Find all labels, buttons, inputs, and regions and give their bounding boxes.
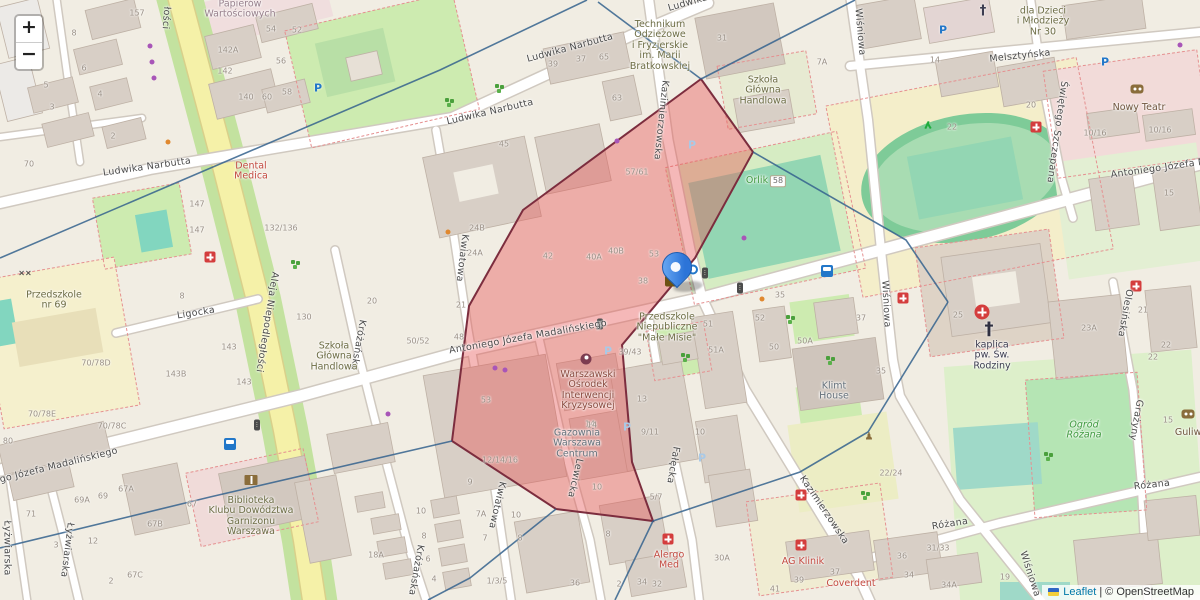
medical-icon xyxy=(205,252,216,263)
street-label: Kwiatowa xyxy=(486,480,508,529)
poi-label-dental-medica: DentalMedica xyxy=(234,162,268,183)
street-label: Wiśniowa xyxy=(879,280,892,328)
street-label: Lewicka xyxy=(565,457,585,498)
house-number: 7A xyxy=(476,510,487,519)
house-number: 50 xyxy=(769,343,779,352)
parking-icon: P xyxy=(939,24,947,37)
house-number: 157 xyxy=(129,9,144,18)
street-label: Antoniego Józefa Madalińskiego xyxy=(448,318,607,357)
zoom-out-button[interactable]: − xyxy=(16,43,42,69)
house-number: 12 xyxy=(88,537,98,546)
house-number: 34A xyxy=(941,581,957,590)
poi-label-sgh-west: SzkołaGłównaHandlowa xyxy=(310,341,357,372)
dot-purple-icon xyxy=(615,139,620,144)
house-number: 2 xyxy=(110,132,115,141)
house-number: 1/3/5 xyxy=(487,577,508,586)
house-number: 67C xyxy=(127,571,143,580)
house-number: 8 xyxy=(179,292,184,301)
house-number: 45 xyxy=(499,140,509,149)
house-number: 69 xyxy=(98,492,108,501)
house-number: 71 xyxy=(26,510,36,519)
house-number: 22 xyxy=(947,123,957,132)
house-number: 142 xyxy=(217,67,232,76)
street-label: Wiśniowa xyxy=(1017,550,1042,598)
house-number: 143B xyxy=(166,370,187,379)
house-number: 3 xyxy=(49,103,54,112)
house-number: 3 xyxy=(53,541,58,550)
house-number: 8 xyxy=(421,532,426,541)
house-number: 67 xyxy=(187,500,197,509)
parking-light-icon: P xyxy=(688,139,696,152)
house-number: 5 xyxy=(43,81,48,90)
poi-label-nowy-teatr: Nowy Teatr xyxy=(1113,103,1166,113)
medical-icon xyxy=(1031,122,1042,133)
poi-label-przedszkole-69: Przedszkolenr 69 xyxy=(26,291,82,312)
parking-light-icon: P xyxy=(623,421,631,434)
trees-icon xyxy=(681,353,685,357)
house-number: 39 xyxy=(548,60,558,69)
dot-purple-icon xyxy=(1178,43,1183,48)
trees-icon xyxy=(861,491,865,495)
house-number: 8 xyxy=(71,29,76,38)
poi-label-dzieci-mlodziezy: dla Dziecii MłodzieżyNr 30 xyxy=(1017,6,1069,37)
house-number: 147 xyxy=(189,200,204,209)
house-number: 22 xyxy=(1148,353,1158,362)
house-number: 14 xyxy=(930,56,940,65)
house-number: 51A xyxy=(708,346,724,355)
house-number: 38 xyxy=(638,277,648,286)
house-number: 9/11 xyxy=(641,428,659,437)
house-number: 35 xyxy=(876,367,886,376)
house-number: 37 xyxy=(856,314,866,323)
parking-icon: P xyxy=(314,82,322,95)
medical-icon xyxy=(898,293,909,304)
house-number: 5/7 xyxy=(650,493,663,502)
trees-icon xyxy=(495,84,499,88)
house-number: 8 xyxy=(517,534,522,543)
trees-icon xyxy=(291,260,295,264)
parking-light-icon: P xyxy=(604,345,612,358)
house-number: 10/16 xyxy=(1148,126,1171,135)
house-number: 56 xyxy=(276,57,286,66)
house-number: 36 xyxy=(570,579,580,588)
house-number: 143 xyxy=(221,343,236,352)
house-number: 50A xyxy=(797,337,813,346)
parking-icon: P xyxy=(1101,56,1109,69)
house-number: 12/14/16 xyxy=(482,456,518,465)
parking-light-icon: P xyxy=(698,452,706,465)
house-number: 65 xyxy=(599,53,609,62)
street-label: łości xyxy=(160,6,173,30)
poi-label-guliwer: Guliwer xyxy=(1175,428,1200,438)
house-number: 58 xyxy=(282,88,292,97)
dot-purple-icon xyxy=(148,44,153,49)
zoom-control: + − xyxy=(14,14,44,71)
house-number: 42 xyxy=(543,252,553,261)
house-number: 40B xyxy=(608,247,624,256)
map-canvas[interactable]: ⋮⋮⋮⋮PPPPPPP††♟×× Ludwika NarbuttaLudwika… xyxy=(0,0,1200,600)
street-label: Grażyny xyxy=(1127,399,1145,442)
house-number: 57/61 xyxy=(625,168,648,177)
dot-purple-icon xyxy=(493,366,498,371)
poi-label-ag-klinik: AG Klinik xyxy=(782,557,824,567)
church-cross-large-icon: † xyxy=(985,319,994,340)
house-number: 10 xyxy=(511,511,521,520)
zoom-in-button[interactable]: + xyxy=(16,16,42,43)
house-number: 70/78E xyxy=(28,410,56,419)
runner-icon xyxy=(923,120,933,130)
house-number: 39/43 xyxy=(618,348,641,357)
masks-icon xyxy=(1131,85,1144,94)
house-number: 60 xyxy=(262,93,272,102)
labels-layer: Ludwika NarbuttaLudwika NarbuttaLudwika … xyxy=(0,0,1200,600)
trees-icon xyxy=(1044,452,1048,456)
house-number: 36 xyxy=(897,552,907,561)
house-number: 24B xyxy=(469,224,485,233)
house-number: 6 xyxy=(81,64,86,73)
house-number: 39 xyxy=(794,576,804,585)
leaflet-link[interactable]: Leaflet xyxy=(1063,586,1096,598)
house-number: 32 xyxy=(652,580,662,589)
house-number: 48 xyxy=(454,333,464,342)
house-number: 4 xyxy=(97,90,102,99)
house-number: 147 xyxy=(189,226,204,235)
house-number: 18A xyxy=(368,551,384,560)
dot-purple-icon xyxy=(503,368,508,373)
street-label: Ludwika Narbutta xyxy=(446,97,535,128)
dot-orange-icon xyxy=(166,140,171,145)
house-number: 10/16 xyxy=(1083,129,1106,138)
poi-label-gazownia: GazowniaWarszawaCentrum xyxy=(553,428,601,459)
dot-purple-icon xyxy=(150,60,155,65)
street-label: Fałęcka xyxy=(664,446,681,485)
house-number: 6 xyxy=(425,555,430,564)
street-label: Króżańska xyxy=(406,544,426,597)
house-number: 22 xyxy=(1161,341,1171,350)
house-number: 34 xyxy=(637,578,647,587)
poi-label-orlik: Orlik xyxy=(746,176,768,186)
house-number: 67A xyxy=(118,485,134,494)
street-label: Łyżwiarska xyxy=(2,520,13,575)
trees-icon xyxy=(786,315,790,319)
house-number: 35 xyxy=(775,291,785,300)
trees-icon xyxy=(445,98,449,102)
street-label: Wiśniowa xyxy=(852,8,867,56)
house-number: 19 xyxy=(1000,573,1010,582)
ukraine-flag-icon xyxy=(1048,588,1059,596)
house-number: 52 xyxy=(292,26,302,35)
house-number: 30A xyxy=(714,554,730,563)
traffic-light-icon: ⋮ xyxy=(737,283,743,294)
street-label: Łyżwiarska xyxy=(58,522,76,578)
house-number: 80 xyxy=(3,437,13,446)
house-number: 67B xyxy=(147,520,163,529)
house-number: 50/52 xyxy=(406,337,429,346)
street-label: Kazimierzowska xyxy=(651,80,670,161)
house-number: 15 xyxy=(1163,416,1173,425)
church-cross-icon: † xyxy=(980,4,987,19)
house-number: 63 xyxy=(612,94,622,103)
dot-purple-icon xyxy=(386,412,391,417)
house-number: 140 xyxy=(238,93,253,102)
dot-orange-icon xyxy=(760,297,765,302)
house-number: 7A xyxy=(817,58,828,67)
house-number: 41 xyxy=(770,585,780,594)
medical-circle-icon xyxy=(975,305,990,320)
street-label: Melsztyńska xyxy=(989,47,1051,64)
dot-purple-icon xyxy=(152,76,157,81)
house-number: 24A xyxy=(467,249,483,258)
attribution-bar: Leaflet|© OpenStreetMap xyxy=(1042,585,1200,600)
house-number: 13 xyxy=(637,395,647,404)
street-label: Antoniego Józefa Madalińskiego xyxy=(1110,147,1200,180)
house-number: 4 xyxy=(431,575,436,584)
house-number: 70 xyxy=(24,160,34,169)
social-icon xyxy=(581,354,592,365)
attribution-separator: | xyxy=(1099,586,1102,598)
house-number: 52 xyxy=(755,314,765,323)
house-number: 22/24 xyxy=(879,469,902,478)
house-number: 69A xyxy=(74,496,90,505)
house-number: 10 xyxy=(592,483,602,492)
openstreetmap-link[interactable]: © OpenStreetMap xyxy=(1105,586,1194,598)
poi-label-woik: WarszawskiOśrodekInterwencjiKryzysowej xyxy=(560,370,615,412)
house-number: 70/78D xyxy=(81,359,110,368)
poi-label-male-misie: PrzedszkoleNiepubliczne"Małe Misie" xyxy=(636,312,697,343)
street-label: Różana xyxy=(931,516,969,533)
house-number: 20 xyxy=(367,297,377,306)
poi-label-ogrod-rozana: OgródRóżana xyxy=(1066,421,1101,442)
house-number: 142A xyxy=(218,46,239,55)
house-number: 143 xyxy=(236,378,251,387)
poi-label-kaplica: kaplicapw. Św.Rodziny xyxy=(973,340,1010,371)
playground-icon: ×× xyxy=(18,269,31,278)
house-number: 132/136 xyxy=(264,224,297,233)
ref-badge: 58 xyxy=(770,175,786,187)
house-number: 31/33 xyxy=(926,544,949,553)
street-label: Kazimierzowska xyxy=(797,474,851,547)
street-label: Świętego Szczepana xyxy=(1044,80,1069,183)
house-number: 10 xyxy=(416,507,426,516)
house-number: 130 xyxy=(296,313,311,322)
street-label: Ludwika xyxy=(667,0,709,14)
house-number: 53 xyxy=(649,250,659,259)
poi-label-klimt-house: KlimtHouse xyxy=(819,382,849,403)
medical-icon xyxy=(796,540,807,551)
house-number: 51 xyxy=(703,320,713,329)
poi-label-papierow: PapierówWartościowych xyxy=(204,0,275,20)
statue-icon: ♟ xyxy=(865,432,874,443)
bus-icon xyxy=(821,265,833,277)
house-number: 70/78C xyxy=(98,422,127,431)
house-number: 25 xyxy=(953,311,963,320)
street-label: Olesińska xyxy=(1115,288,1134,338)
dot-orange-icon xyxy=(446,230,451,235)
poi-label-technikum: TechnikumOdzieżowei Fryzjerskieim. Marii… xyxy=(630,20,690,72)
dot-purple-icon xyxy=(742,236,747,241)
street-label: Różana xyxy=(1133,478,1170,493)
house-number: 23A xyxy=(1081,324,1097,333)
poi-label-sgh-north: SzkołaGłównaHandlowa xyxy=(739,75,786,106)
trees-icon xyxy=(826,356,830,360)
poi-label-alergo-med: AlergoMed xyxy=(654,551,685,572)
traffic-light-icon: ⋮ xyxy=(254,420,260,431)
house-number: 37 xyxy=(830,568,840,577)
house-number: 2 xyxy=(108,577,113,586)
medical-icon xyxy=(663,534,674,545)
house-number: 20 xyxy=(1026,101,1036,110)
house-number: 37 xyxy=(576,55,586,64)
house-number: 15 xyxy=(1164,189,1174,198)
street-label: Antoniego Józefa Madalińskiego xyxy=(0,445,119,494)
poi-label-coverdent: Coverdent xyxy=(826,579,875,589)
traffic-light-icon: ⋮ xyxy=(702,268,708,279)
masks-icon xyxy=(1182,410,1195,419)
house-number: 7 xyxy=(482,534,487,543)
house-number: 8 xyxy=(605,530,610,539)
house-number: 54 xyxy=(266,25,276,34)
house-number: 40A xyxy=(586,253,602,262)
house-number: 21 xyxy=(456,301,466,310)
house-number: 2 xyxy=(616,580,621,589)
bus-icon xyxy=(224,438,236,450)
house-number: 53 xyxy=(481,396,491,405)
book-icon xyxy=(245,475,258,485)
house-number: 9 xyxy=(467,478,472,487)
street-label: Ludwika Narbutta xyxy=(102,155,191,178)
house-number: 34 xyxy=(904,571,914,580)
house-number: 31 xyxy=(717,34,727,43)
street-label: Aleja Niepodległości xyxy=(254,271,281,373)
poi-label-biblioteka: BibliotekaKlubu DowództwaGarnizonuWarsza… xyxy=(208,496,293,538)
house-number: 10 xyxy=(695,428,705,437)
street-label: Kwiatowa xyxy=(454,234,471,283)
street-label: Ligocka xyxy=(176,305,216,322)
house-number: 21 xyxy=(1138,306,1148,315)
